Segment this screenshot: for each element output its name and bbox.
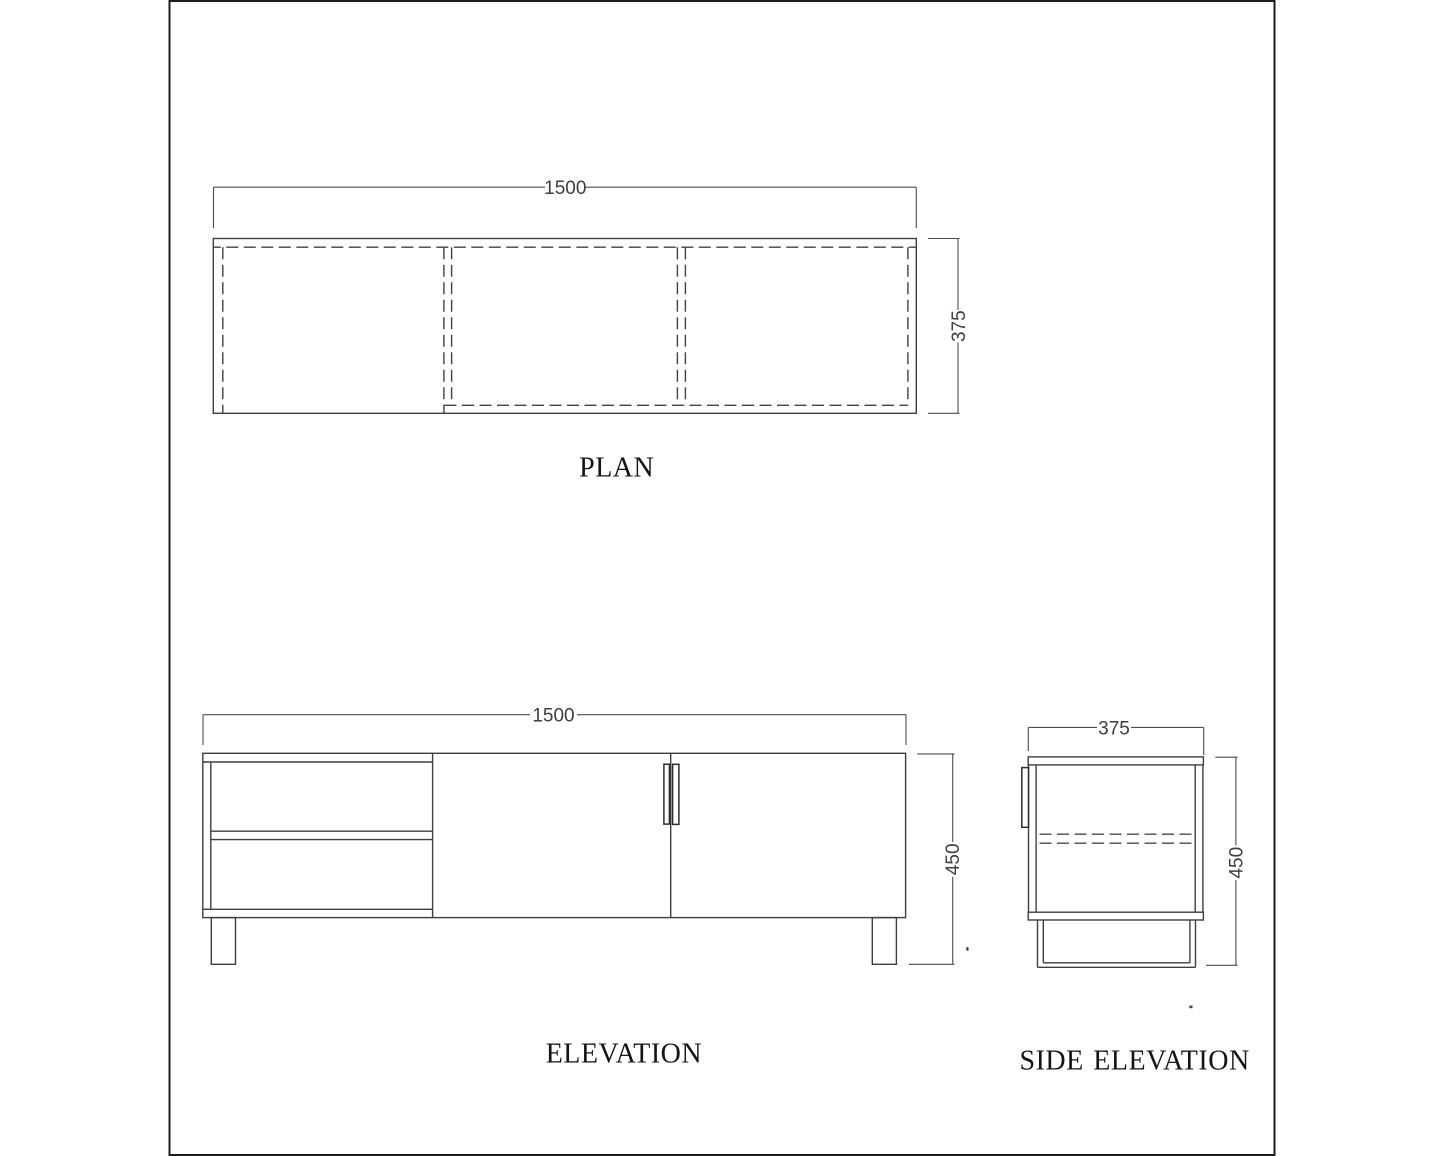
- svg-text:450: 450: [1227, 847, 1248, 879]
- svg-text:1500: 1500: [544, 178, 586, 199]
- svg-text:450: 450: [943, 843, 964, 875]
- svg-text:ELEVATION: ELEVATION: [546, 1038, 702, 1069]
- svg-text:PLAN: PLAN: [579, 453, 654, 484]
- svg-text:375: 375: [949, 310, 970, 342]
- svg-text:375: 375: [1098, 718, 1130, 739]
- svg-text:1500: 1500: [532, 706, 574, 727]
- svg-text:SIDE ELEVATION: SIDE ELEVATION: [1020, 1046, 1250, 1077]
